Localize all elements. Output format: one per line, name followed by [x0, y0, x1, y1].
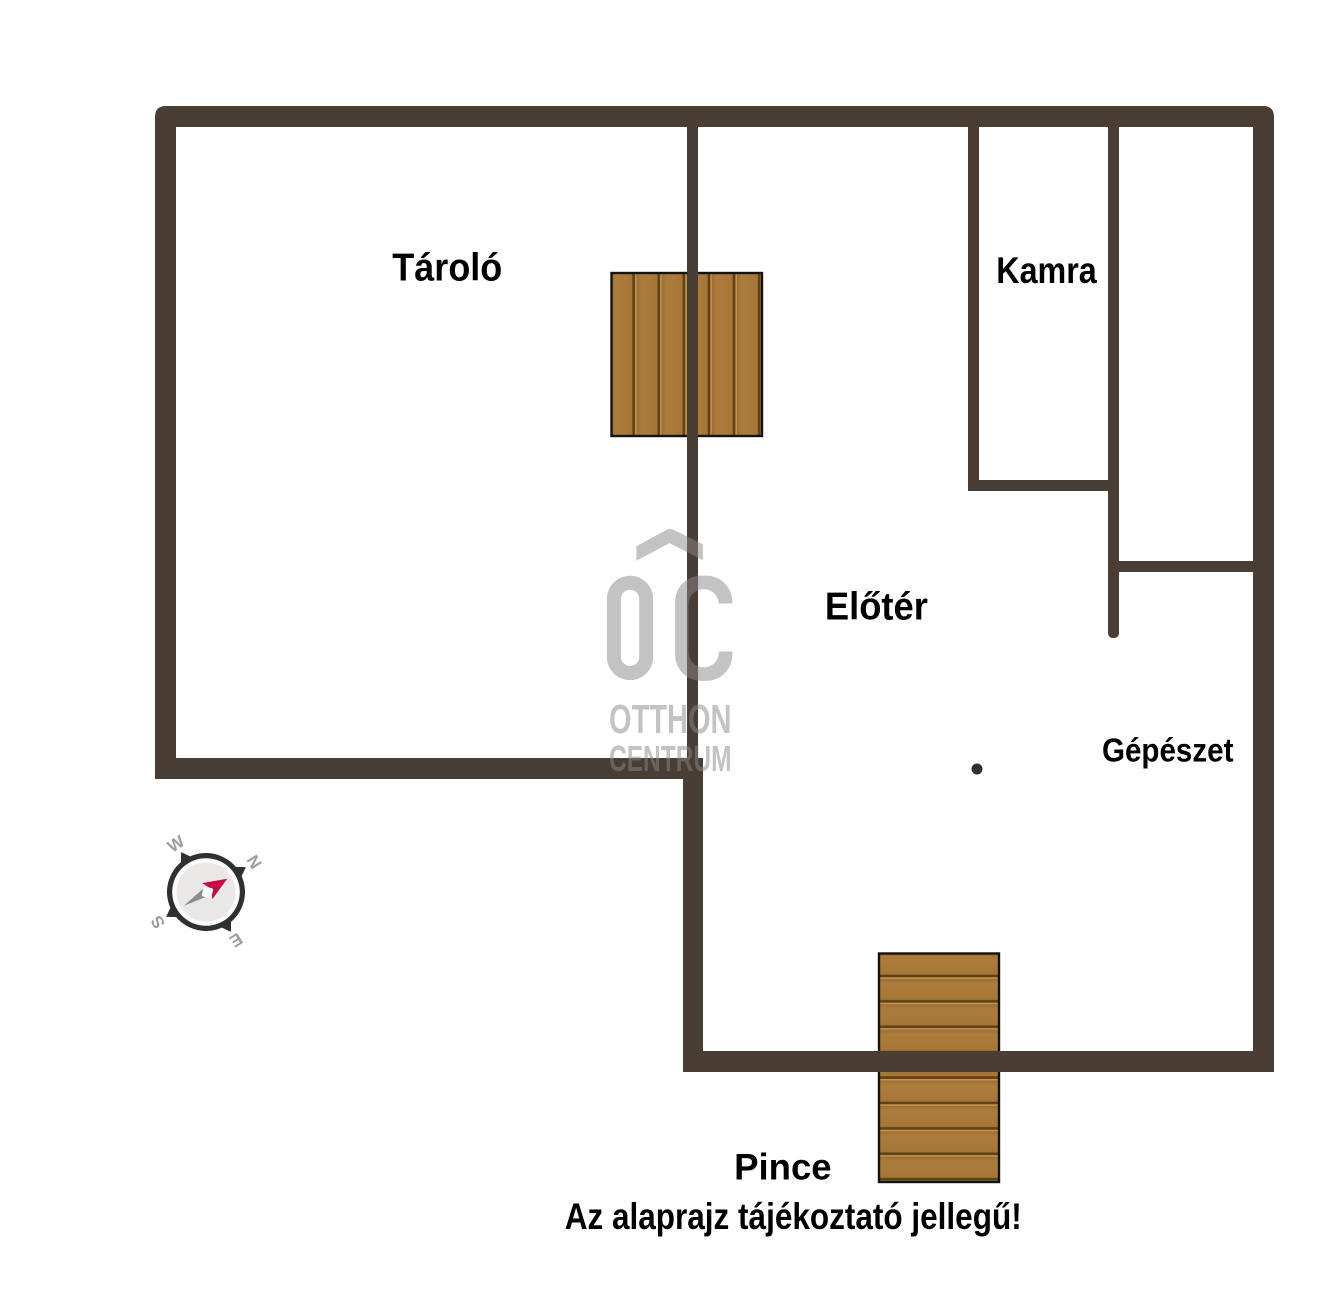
- svg-text:Kamra: Kamra: [996, 250, 1097, 291]
- svg-text:OTTHON: OTTHON: [609, 696, 732, 742]
- svg-text:Az alaprajz tájékoztató jelleg: Az alaprajz tájékoztató jellegű!: [565, 1196, 1022, 1237]
- svg-text:Előtér: Előtér: [825, 585, 928, 628]
- svg-text:CENTRUM: CENTRUM: [609, 739, 732, 779]
- svg-text:Pince: Pince: [734, 1146, 832, 1188]
- svg-text:Gépészet: Gépészet: [1102, 733, 1234, 770]
- svg-text:Tároló: Tároló: [392, 247, 502, 290]
